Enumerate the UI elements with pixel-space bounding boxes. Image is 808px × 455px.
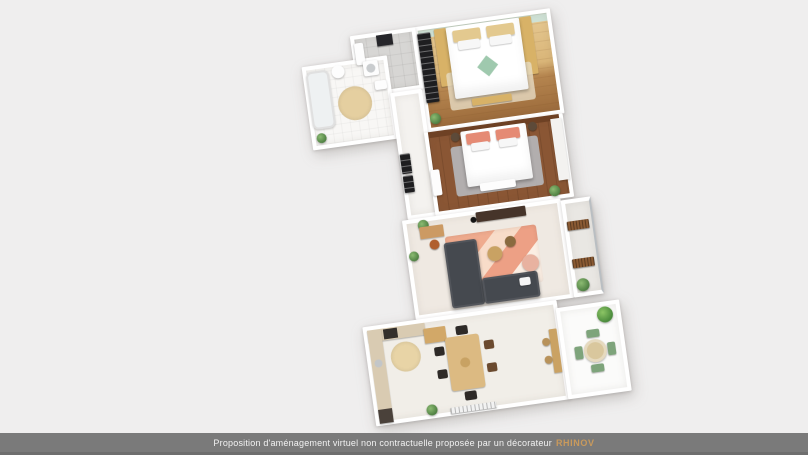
dining-chair-r2 [487, 362, 498, 372]
disclaimer-text: Proposition d'aménagement virtuel non co… [213, 438, 552, 448]
washing-machine [362, 60, 379, 77]
kitchen-appliance [378, 408, 394, 424]
dining-chair-l2 [437, 369, 448, 379]
pillow-white-left [457, 38, 480, 50]
washer-door-icon [366, 63, 376, 73]
table-centerpiece [460, 357, 471, 368]
terrace-chair-right [607, 341, 617, 355]
hallway-art-frame-2 [403, 175, 415, 193]
dining-chair-head-bottom [464, 390, 477, 401]
dining-chair-l1 [434, 346, 445, 356]
pillow-white-right [489, 34, 512, 46]
footer-disclaimer-bar: Proposition d'aménagement virtuel non co… [0, 433, 808, 455]
dining-table [445, 333, 486, 391]
sofa-cushion-white [519, 277, 531, 286]
dining-chair-r1 [483, 339, 494, 349]
bed-double-2 [460, 123, 533, 188]
green-diamond-throw [477, 55, 498, 76]
brand-rhinov: RHINOV [556, 438, 595, 448]
bath-sink [374, 80, 387, 91]
dining-chair-head-top [455, 325, 468, 336]
terrace-chair-left [574, 346, 584, 360]
pillow-white-2r [499, 137, 518, 147]
rhinov-floorplan-render: Proposition d'aménagement virtuel non co… [0, 0, 808, 455]
kitchen-island [423, 326, 447, 344]
floorplan [298, 4, 632, 429]
entry-wall-art [376, 33, 393, 46]
bed-double-1 [445, 18, 528, 100]
kitchen-sink-icon [374, 359, 383, 368]
stove-cooktop [383, 328, 398, 340]
pillow-white-2l [471, 141, 490, 151]
